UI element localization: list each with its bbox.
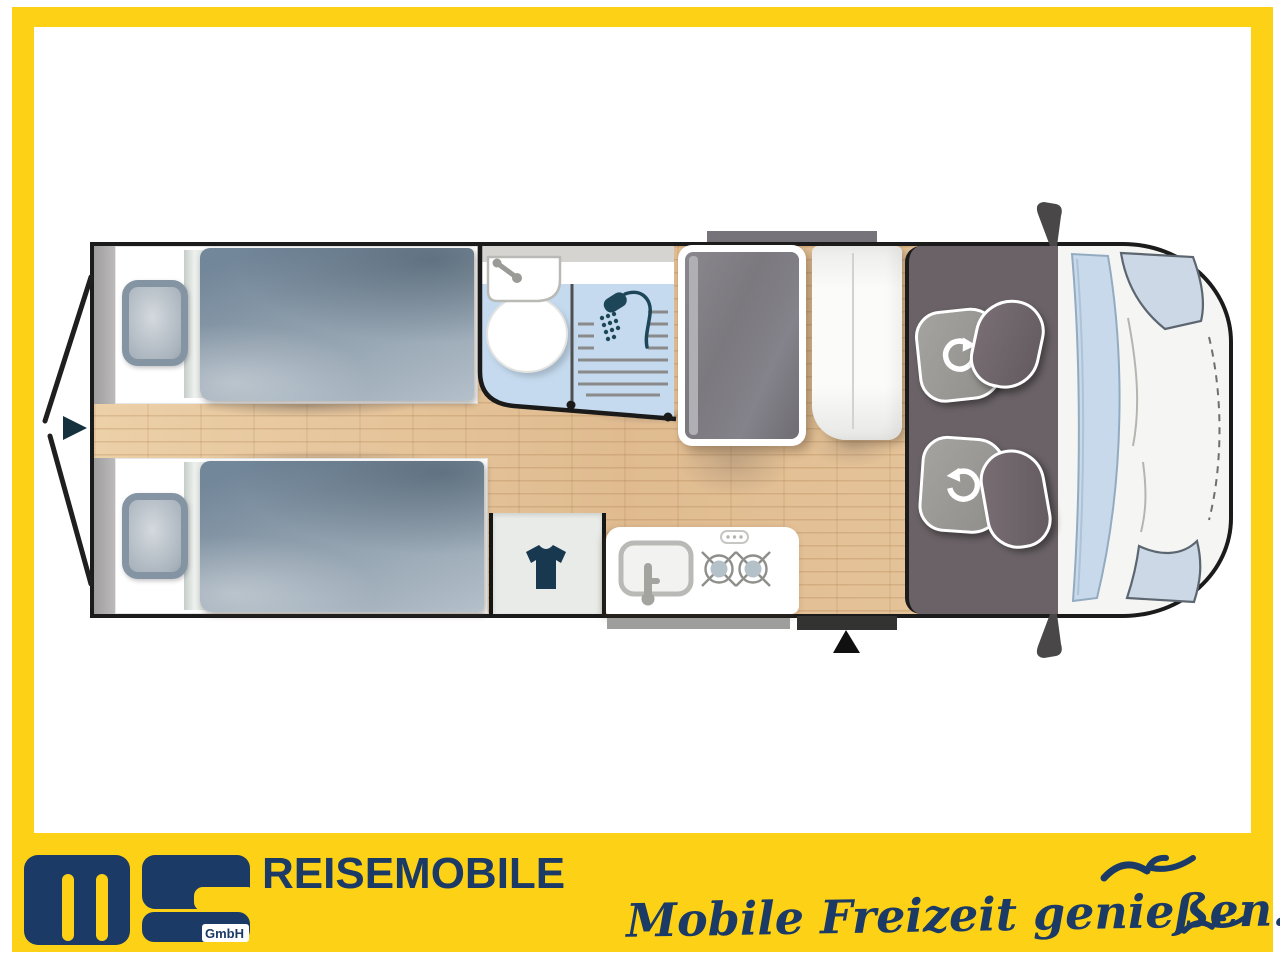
- left-wall-strip-top: [94, 246, 115, 404]
- left-wall-strip-bottom: [94, 458, 115, 614]
- duvet-top-bed: [200, 248, 474, 401]
- wardrobe-interior: [685, 252, 799, 439]
- seagull-icon-large: [1098, 848, 1198, 894]
- driver-cab-floor: [905, 246, 1058, 614]
- kitchen-block: [606, 527, 799, 614]
- logo-gmbh-label: GmbH: [205, 926, 244, 941]
- pillow-bottom-bed: [122, 493, 188, 579]
- entry-door-sill: [797, 616, 897, 630]
- company-line: REISEMOBILE: [262, 849, 565, 899]
- wardrobe-shelf-edge: [689, 256, 698, 435]
- wardrobe-cabinet: [678, 245, 806, 446]
- vehicle-front-cab: [1058, 242, 1233, 618]
- clothes-closet: [489, 513, 606, 614]
- cabinet-door-seam: [852, 253, 854, 429]
- logo-letter-s: GmbH: [142, 855, 256, 942]
- seagull-icon-small: [1180, 908, 1250, 944]
- entry-step: [607, 618, 790, 629]
- page: GmbH REISEMOBILE Mobile Freizeit genieße…: [0, 0, 1280, 959]
- tall-cabinet: [812, 246, 902, 440]
- duvet-bottom-bed: [200, 461, 484, 612]
- seat-rotation-icon: [939, 462, 986, 509]
- ms-logo: GmbH: [20, 850, 265, 950]
- logo-letter-m: [24, 855, 130, 945]
- pillow-top-bed: [122, 280, 188, 366]
